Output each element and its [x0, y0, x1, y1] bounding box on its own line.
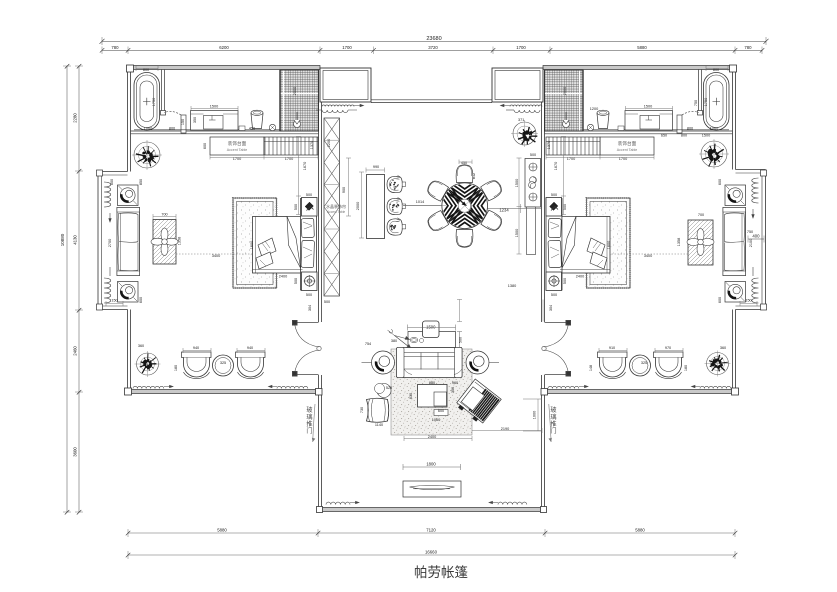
svg-text:1060: 1060 [710, 127, 718, 131]
svg-text:700: 700 [698, 213, 704, 217]
svg-text:1500: 1500 [644, 105, 652, 109]
svg-text:180: 180 [684, 365, 688, 371]
svg-text:1200: 1200 [590, 107, 598, 111]
svg-text:装饰台面: 装饰台面 [618, 140, 637, 147]
svg-text:1800: 1800 [426, 462, 436, 467]
svg-text:装饰台面: 装饰台面 [228, 140, 247, 147]
svg-text:2280: 2280 [73, 113, 78, 123]
svg-text:1700: 1700 [342, 45, 352, 50]
svg-text:1500: 1500 [210, 105, 218, 109]
svg-text:500: 500 [306, 193, 312, 197]
svg-text:帕劳帐篷: 帕劳帐篷 [414, 565, 468, 580]
svg-text:900: 900 [342, 187, 346, 193]
svg-text:500: 500 [306, 293, 312, 297]
svg-text:1500: 1500 [515, 229, 519, 237]
svg-text:16660: 16660 [425, 550, 438, 555]
svg-text:1500: 1500 [426, 324, 436, 329]
svg-text:玻: 玻 [306, 406, 312, 414]
svg-text:水晶装饰帘: 水晶装饰帘 [326, 203, 346, 209]
svg-text:3400: 3400 [644, 254, 652, 258]
svg-text:700: 700 [161, 213, 167, 217]
svg-text:Accent Table: Accent Table [327, 210, 345, 214]
svg-text:1358: 1358 [677, 238, 681, 246]
svg-text:1600: 1600 [607, 241, 611, 249]
svg-text:2700: 2700 [108, 239, 112, 247]
svg-text:推: 推 [550, 420, 556, 428]
svg-text:1060: 1060 [432, 418, 440, 422]
svg-text:3600: 3600 [73, 447, 78, 457]
svg-text:推: 推 [306, 420, 312, 428]
svg-text:1670: 1670 [554, 162, 558, 170]
svg-text:1358: 1358 [178, 237, 182, 245]
svg-text:1700: 1700 [516, 45, 526, 50]
svg-text:990: 990 [373, 165, 379, 169]
svg-text:380: 380 [391, 339, 397, 343]
svg-text:门: 门 [550, 427, 556, 435]
svg-text:325: 325 [220, 361, 226, 365]
svg-text:1750: 1750 [152, 98, 156, 106]
svg-text:2000: 2000 [563, 87, 567, 95]
svg-text:150: 150 [111, 299, 117, 303]
svg-text:350: 350 [451, 387, 455, 393]
svg-text:500: 500 [294, 204, 298, 210]
svg-text:780: 780 [111, 45, 119, 50]
svg-text:500: 500 [563, 278, 567, 284]
svg-text:600: 600 [438, 409, 444, 413]
svg-text:1500: 1500 [515, 179, 519, 187]
svg-text:1370: 1370 [310, 141, 314, 149]
svg-text:2460: 2460 [73, 346, 78, 356]
svg-text:600: 600 [139, 297, 143, 303]
svg-text:304: 304 [549, 305, 553, 311]
svg-text:1014: 1014 [416, 200, 424, 204]
svg-text:3720: 3720 [428, 45, 438, 50]
svg-text:304: 304 [308, 305, 312, 311]
svg-text:500: 500 [324, 300, 330, 304]
svg-text:600: 600 [718, 179, 722, 185]
svg-text:800: 800 [681, 134, 687, 138]
svg-text:1380: 1380 [508, 284, 516, 288]
svg-text:500: 500 [459, 337, 463, 343]
svg-text:5880: 5880 [635, 528, 645, 533]
svg-text:7120: 7120 [426, 528, 436, 533]
svg-text:730: 730 [360, 407, 364, 413]
svg-text:150: 150 [745, 299, 751, 303]
svg-text:500: 500 [551, 293, 557, 297]
svg-text:500: 500 [530, 153, 536, 157]
svg-text:600: 600 [203, 143, 207, 149]
svg-text:750: 750 [694, 100, 698, 106]
svg-text:970: 970 [665, 346, 671, 350]
svg-text:Accent Table: Accent Table [227, 148, 248, 152]
svg-text:1140: 1140 [375, 423, 383, 427]
svg-text:980: 980 [429, 381, 435, 385]
svg-text:910: 910 [609, 346, 615, 350]
svg-text:2400: 2400 [279, 275, 287, 279]
svg-text:850: 850 [139, 179, 143, 185]
svg-text:940: 940 [247, 346, 253, 350]
svg-text:1234: 1234 [499, 208, 509, 213]
svg-text:1750: 1750 [704, 98, 708, 106]
svg-text:360: 360 [720, 346, 726, 350]
svg-text:1000: 1000 [533, 411, 537, 419]
svg-text:1500: 1500 [702, 134, 710, 138]
svg-text:180: 180 [174, 365, 178, 371]
svg-text:2100: 2100 [749, 239, 753, 247]
svg-text:2000: 2000 [356, 202, 360, 210]
svg-text:812: 812 [472, 173, 476, 179]
svg-text:600: 600 [718, 297, 722, 303]
svg-text:5880: 5880 [217, 528, 227, 533]
svg-text:23680: 23680 [426, 36, 441, 42]
svg-text:6200: 6200 [219, 45, 229, 50]
svg-text:Accent Table: Accent Table [617, 148, 638, 152]
svg-text:800: 800 [169, 127, 175, 131]
svg-text:371: 371 [518, 118, 524, 122]
svg-text:1670: 1670 [303, 162, 307, 170]
svg-text:450: 450 [249, 127, 255, 131]
svg-text:4130: 4130 [73, 235, 78, 245]
svg-text:5880: 5880 [637, 45, 647, 50]
svg-text:1370: 1370 [547, 141, 551, 149]
svg-text:400: 400 [752, 234, 760, 239]
svg-text:780: 780 [744, 45, 752, 50]
svg-text:600: 600 [110, 179, 114, 185]
svg-text:325: 325 [641, 361, 647, 365]
svg-text:525: 525 [386, 386, 392, 390]
svg-text:754: 754 [365, 342, 371, 346]
svg-text:150: 150 [181, 119, 185, 125]
svg-text:500: 500 [294, 278, 298, 284]
svg-text:960: 960 [452, 381, 458, 385]
svg-text:10880: 10880 [60, 233, 65, 246]
svg-text:3400: 3400 [212, 254, 220, 258]
svg-text:2200: 2200 [327, 139, 331, 147]
svg-text:940: 940 [193, 346, 199, 350]
svg-text:148: 148 [589, 365, 593, 371]
svg-text:2400: 2400 [576, 275, 584, 279]
svg-text:650: 650 [661, 134, 667, 138]
svg-text:750: 750 [747, 230, 753, 234]
svg-text:630: 630 [409, 393, 413, 399]
svg-text:璃: 璃 [550, 413, 556, 421]
svg-text:1060: 1060 [144, 127, 152, 131]
svg-text:450: 450 [461, 161, 467, 165]
svg-text:360: 360 [138, 344, 144, 348]
svg-text:2000: 2000 [293, 87, 297, 95]
svg-text:350: 350 [193, 117, 197, 123]
svg-text:1600: 1600 [250, 241, 254, 249]
svg-text:玻: 玻 [550, 406, 556, 414]
svg-text:璃: 璃 [306, 413, 312, 421]
svg-text:500: 500 [551, 193, 557, 197]
svg-text:800: 800 [687, 127, 693, 131]
svg-text:门: 门 [306, 427, 312, 435]
